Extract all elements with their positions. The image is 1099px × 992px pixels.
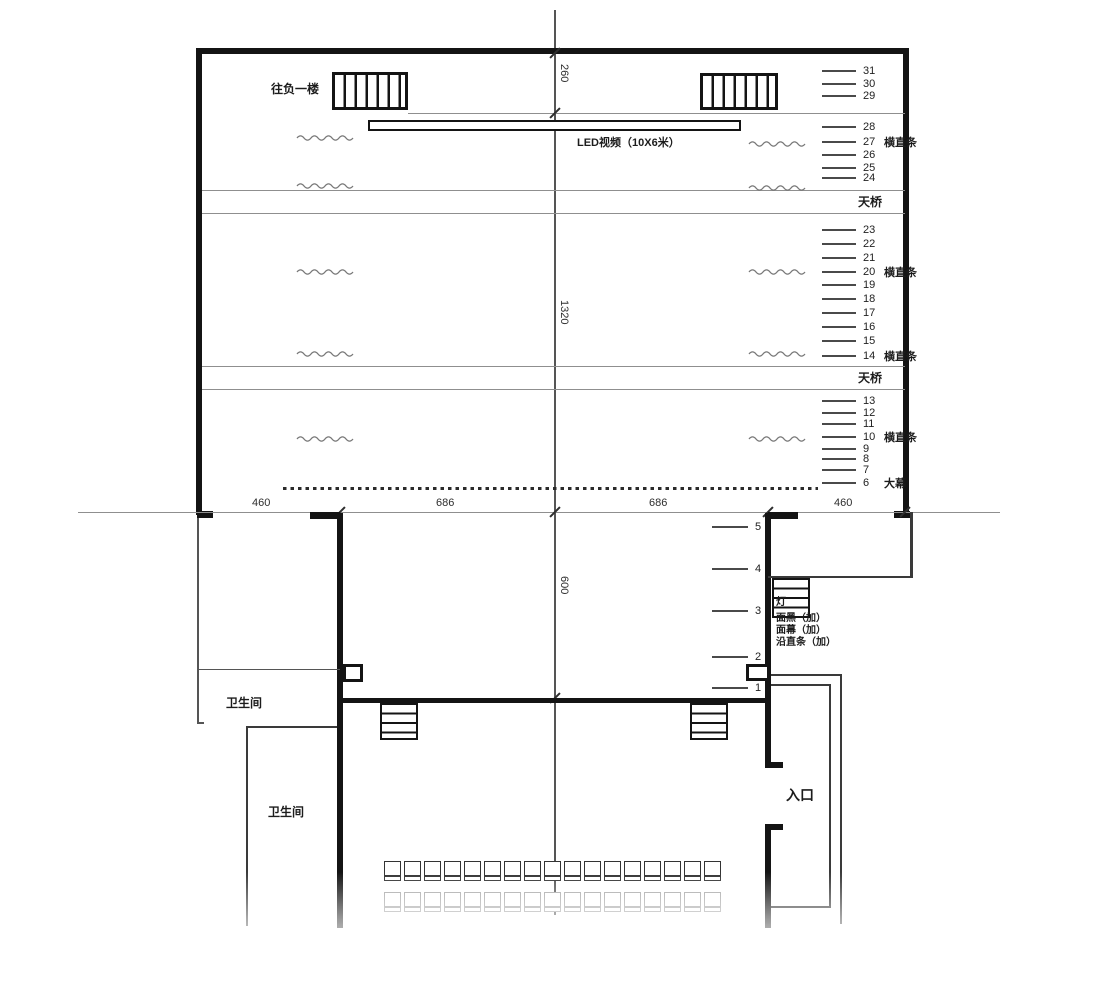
batten-tick-line [822,154,856,156]
door-block-left [343,664,363,682]
squiggle-curtain-mark [296,133,354,142]
bottom-fade-overlay [0,872,1099,992]
catwalk-lower-line-top [202,366,905,367]
audience-seat [644,861,661,881]
main-depth-dimension: 1320 [558,300,569,324]
audience-seat [564,892,581,912]
stage-wall-left [196,48,202,515]
audience-seat [404,861,421,881]
audience-seat [524,861,541,881]
left-outer-wall-end-tick [197,722,204,724]
squiggle-curtain-mark [748,267,806,276]
batten-tick-line [822,436,856,438]
toilet-lower-wall-line [246,726,340,728]
batten-tick-line [822,482,856,484]
toilet-upper-wall-line [197,669,340,670]
audience-seat [644,892,661,912]
batten-tick-line [822,126,856,128]
entrance-wall-lower [765,824,771,928]
top-depth-dimension: 260 [558,64,569,82]
batten-tick-line [822,70,856,72]
batten-row: 11 [822,418,879,430]
led-screen-bar [368,120,741,131]
stage-front-dimension-line [78,512,1000,513]
batten-tick-line [822,412,856,414]
main-curtain-dotted-line [283,487,818,490]
rear-stage-zone-line [408,113,905,114]
batten-row: 20横直条 [822,266,917,278]
center-line [554,10,556,915]
corridor-inner-top [771,684,830,686]
stage-note-2: 面黑（加） [776,614,826,624]
batten-suffix-label: 横直条 [884,429,917,445]
batten-tick-line [822,458,856,460]
side-room-right-edge [910,512,913,578]
toilet-lower-label: 卫生间 [268,806,304,818]
batten-number: 7 [863,464,879,476]
batten-row: 29 [822,90,879,102]
batten-number: 13 [863,395,879,407]
batten-tick-line [822,326,856,328]
audience-seat [464,892,481,912]
batten-number: 16 [863,321,879,333]
batten-tick-line [822,423,856,425]
batten-row: 19 [822,279,879,291]
apron-stairs-right [690,703,728,740]
batten-tick-line [822,271,856,273]
corridor-outer-right [840,674,842,924]
batten-number: 31 [863,65,879,77]
catwalk-upper-label: 天桥 [858,196,882,208]
batten-row: 30 [822,78,879,90]
audience-seat [404,892,421,912]
corridor-inner-right [829,684,831,908]
batten-tick-line [822,340,856,342]
batten-tick-line [822,298,856,300]
batten-tick-line [712,687,748,689]
batten-tick-line [822,469,856,471]
squiggle-curtain-mark [296,181,354,190]
to-basement-label: 往负一楼 [271,83,319,95]
batten-tick-line [822,229,856,231]
batten-row: 2 [712,651,771,663]
squiggle-curtain-mark [748,183,806,192]
batten-number: 11 [863,418,879,430]
batten-suffix-label: 大幕 [884,475,906,491]
squiggle-curtain-mark [748,434,806,443]
audience-seat [564,861,581,881]
squiggle-curtain-mark [296,349,354,358]
batten-row: 27横直条 [822,136,917,148]
audience-seat [504,892,521,912]
catwalk-upper-line-bottom [202,213,905,214]
batten-suffix-label: 横直条 [884,134,917,150]
audience-seat [384,861,401,881]
batten-number: 14 [863,350,879,362]
batten-number: 18 [863,293,879,305]
left-outer-wall-lower [197,518,199,724]
audience-seat [704,861,721,881]
batten-number: 30 [863,78,879,90]
batten-number: 29 [863,90,879,102]
batten-row: 28 [822,121,879,133]
batten-tick-line [822,355,856,357]
batten-number: 19 [863,279,879,291]
batten-row: 1 [712,682,771,694]
batten-number: 20 [863,266,879,278]
width-dim-left-inner: 686 [436,498,454,509]
toilet-upper-label: 卫生间 [226,697,262,709]
batten-row: 14横直条 [822,350,917,362]
batten-tick-line [712,526,748,528]
batten-number: 21 [863,252,879,264]
batten-tick-line [822,83,856,85]
batten-number: 10 [863,431,879,443]
audience-seat [604,892,621,912]
audience-seat [664,861,681,881]
door-block-right [746,664,770,681]
audience-seat [584,861,601,881]
apron-stairs-left [380,703,418,740]
audience-seat [504,861,521,881]
batten-tick-line [712,568,748,570]
audience-seat [444,892,461,912]
batten-row: 26 [822,149,879,161]
catwalk-lower-line-bottom [202,389,905,390]
batten-row: 7 [822,464,879,476]
stage-note-4: 沿直条（加） [776,638,836,648]
audience-seat [544,861,561,881]
batten-row: 18 [822,293,879,305]
entrance-label: 入口 [786,788,814,802]
audience-seat [384,892,401,912]
audience-seat [684,892,701,912]
batten-number: 26 [863,149,879,161]
stage-note-1: 灯 [776,598,786,608]
audience-seat [544,892,561,912]
audience-seat [484,892,501,912]
apron-depth-dimension: 600 [558,576,569,594]
batten-row: 4 [712,563,771,575]
batten-row: 16 [822,321,879,333]
batten-row: 6大幕 [822,477,906,489]
proscenium-wall-right [765,513,771,768]
led-screen-label: LED视频（10X6米） [577,138,680,149]
batten-row: 10横直条 [822,431,917,443]
audience-seat [464,861,481,881]
batten-row: 21 [822,252,879,264]
batten-number: 27 [863,136,879,148]
stage-floor-plan: 往负一楼 LED视频（10X6米） 天桥 天桥 460 686 686 460 … [0,0,1099,992]
corridor-outer-top [771,674,841,676]
audience-seat [444,861,461,881]
batten-row: 31 [822,65,879,77]
squiggle-curtain-mark [748,139,806,148]
batten-row: 17 [822,307,879,319]
batten-tick-line [822,177,856,179]
batten-tick-line [822,141,856,143]
width-dim-left-outer: 460 [252,498,270,509]
toilet-lower-wall-left [246,726,248,926]
proscenium-wall-right-tick [768,512,798,519]
batten-number: 28 [863,121,879,133]
batten-suffix-label: 横直条 [884,264,917,280]
batten-tick-line [712,610,748,612]
batten-number: 17 [863,307,879,319]
batten-suffix-label: 横直条 [884,348,917,364]
squiggle-curtain-mark [748,349,806,358]
batten-number: 23 [863,224,879,236]
proscenium-wall-left-tick [310,512,340,519]
batten-row: 3 [712,605,771,617]
audience-seat [424,892,441,912]
stairs-to-basement-right [700,73,778,110]
stairs-to-basement-left [332,72,408,110]
batten-row: 13 [822,395,879,407]
width-dim-right-inner: 686 [649,498,667,509]
batten-tick-line [822,284,856,286]
audience-wall-left [337,702,343,928]
batten-row: 23 [822,224,879,236]
stage-note-3: 面幕（加） [776,626,826,636]
width-dim-right-outer: 460 [834,498,852,509]
batten-tick-line [822,243,856,245]
audience-seat [484,861,501,881]
batten-tick-line [822,448,856,450]
batten-number: 24 [863,172,879,184]
audience-seat [624,861,641,881]
batten-tick-line [822,257,856,259]
batten-row: 24 [822,172,879,184]
squiggle-curtain-mark [296,434,354,443]
audience-seat [684,861,701,881]
entrance-wall-lower-tick [769,824,783,830]
batten-row: 15 [822,335,879,347]
audience-seat [604,861,621,881]
corridor-bottom [771,906,831,908]
batten-number: 6 [863,477,879,489]
batten-tick-line [822,312,856,314]
squiggle-curtain-mark [296,267,354,276]
entrance-wall-upper-tick [769,762,783,768]
audience-seat [624,892,641,912]
batten-tick-line [822,167,856,169]
batten-tick-line [822,400,856,402]
audience-seat [424,861,441,881]
batten-number: 15 [863,335,879,347]
audience-seat [664,892,681,912]
batten-row: 5 [712,521,771,533]
audience-seat [584,892,601,912]
batten-number: 22 [863,238,879,250]
audience-seat [524,892,541,912]
batten-tick-line [822,95,856,97]
batten-tick-line [712,656,748,658]
audience-seat [704,892,721,912]
catwalk-lower-label: 天桥 [858,372,882,384]
batten-row: 22 [822,238,879,250]
